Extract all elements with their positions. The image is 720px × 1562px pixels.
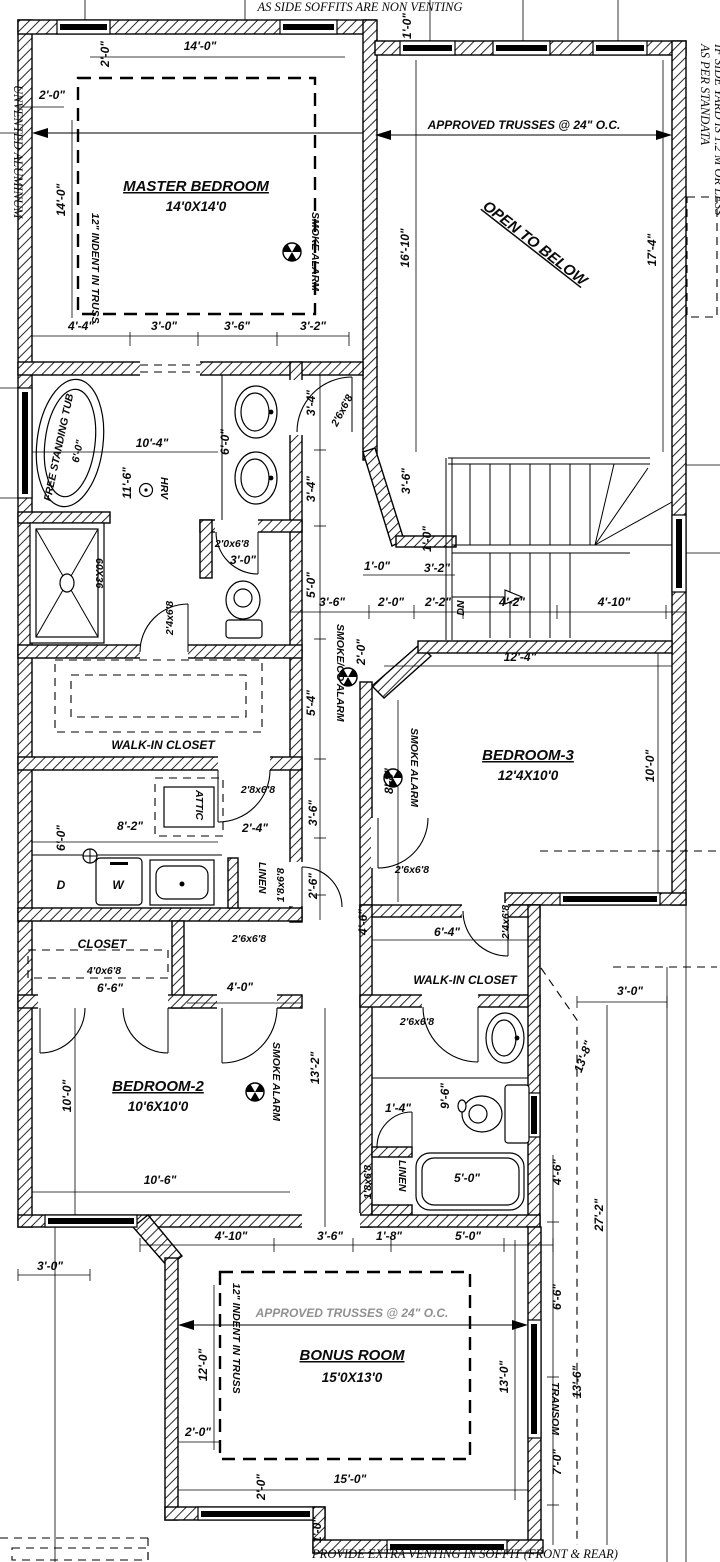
dim-label: 13'-0": [497, 1360, 511, 1393]
door-swing: [40, 1008, 85, 1053]
dim-label: 2'-0": [98, 41, 112, 68]
dim-label: 1'-8": [376, 1229, 402, 1243]
dim-label: 6'-0": [54, 825, 68, 851]
dn-label: DN: [455, 600, 467, 616]
door-label: 2'0x6'8: [214, 538, 249, 550]
room-bedroom3-name: BEDROOM-3: [482, 747, 574, 764]
note-bottom: PROVIDE EXTRA VENTING IN SOFFIT (FRONT &…: [311, 1547, 618, 1561]
window: [280, 20, 337, 34]
dim-label: 2'-0": [38, 88, 65, 102]
dim-label: 11'-6": [120, 467, 134, 499]
room-bedroom2-size: 10'6X10'0: [128, 1099, 189, 1114]
door-label: 2'4x6'8: [500, 905, 512, 940]
door-label: 2'6x6'8: [399, 1016, 434, 1028]
dim-label: 27'-2": [592, 1198, 606, 1232]
dim-label: 2'-0": [377, 595, 404, 609]
dim-label: 16'-10": [398, 228, 412, 268]
attic-access: [155, 778, 223, 836]
floor-plan-drawing: AS SIDE SOFFITS ARE NON VENTING UNVENTED…: [0, 0, 720, 1562]
dim-label: 4'-6": [356, 909, 370, 936]
dim-label: 4'-2": [498, 595, 525, 609]
dim-label: 4'-0": [226, 980, 253, 994]
dim-label: 1'-0": [364, 559, 390, 573]
open-to-below-label: OPEN TO BELOW: [479, 198, 591, 291]
room-bonus-name: BONUS ROOM: [300, 1347, 406, 1364]
dim-label: 5'-0": [454, 1171, 480, 1185]
dim-label: 3'-0": [151, 319, 177, 333]
walls: [18, 20, 686, 1553]
dim-label: 5'-4": [304, 690, 318, 716]
dim-label: 4'-4": [67, 319, 94, 333]
door-swing: [222, 1008, 277, 1063]
note-top: AS SIDE SOFFITS ARE NON VENTING: [257, 0, 463, 14]
door-label: 1'8x6'8: [275, 868, 287, 902]
faucet-icon: [83, 849, 97, 863]
dim-label: 3'-0": [37, 1259, 63, 1273]
room-master-size: 14'0X14'0: [166, 199, 227, 214]
dim-label: 8'-8": [382, 768, 396, 794]
room-bedroom2-name: BEDROOM-2: [112, 1078, 204, 1095]
room-closet: CLOSET: [78, 937, 128, 951]
dim-label: 3'-4": [304, 390, 318, 416]
dim-label: 1'-0": [310, 1517, 324, 1543]
smoke-co-alarm-label: SMOKE/CO ALARM: [334, 624, 346, 722]
window: [672, 515, 686, 592]
door-label: 1'8x6'8: [362, 1165, 374, 1199]
dim-label: 6'-6": [550, 1284, 564, 1310]
dim-label: 4'-6": [550, 1159, 564, 1186]
room-wic-bed3: WALK-IN CLOSET: [413, 973, 518, 987]
window: [18, 388, 32, 498]
truss-line: [32, 128, 363, 138]
dim-label: 2'-0": [354, 639, 368, 666]
dim-label: 1'-0": [400, 13, 414, 39]
dryer-label: D: [57, 878, 66, 892]
dim-label: 8'-2": [117, 819, 143, 833]
dim-label: 10'-0": [60, 1079, 74, 1112]
window: [593, 41, 647, 55]
door-label: 2'6x6'8: [394, 864, 429, 876]
note-right-1: AS PER STANDATA: [698, 43, 712, 146]
window: [45, 1215, 137, 1227]
dim-label: 3'-6": [319, 595, 345, 609]
dim-label: 3'-6": [317, 1229, 343, 1243]
door-swing: [218, 770, 270, 822]
dim-label: 13'-2": [308, 1051, 322, 1084]
dim-label: 13'-8": [571, 1039, 595, 1075]
dim-label: 7'-0": [550, 1449, 564, 1475]
dim-label: 14'-0": [54, 183, 68, 216]
toilet: [458, 1085, 529, 1143]
sink: [235, 386, 277, 438]
dim-label: 14'-0": [184, 39, 217, 53]
note-right-2: IF SIDE YARD IS 1.2 M OR LESS: [712, 43, 720, 216]
hrv-label: HRV: [158, 477, 170, 500]
door-swing: [123, 1008, 168, 1053]
dim-label: 10'-6": [144, 1173, 177, 1187]
dashed-lines: [0, 78, 717, 1562]
window: [57, 20, 110, 34]
trusses-note: APPROVED TRUSSES @ 24" O.C.: [427, 118, 621, 132]
dim-label: 3'-0": [230, 553, 256, 567]
dim-label: 2'-4": [241, 821, 268, 835]
dim-label: 3'-6": [306, 800, 320, 826]
dim-label: 5'-0": [304, 572, 318, 598]
window: [528, 1320, 541, 1438]
washer-label: W: [112, 878, 125, 892]
dim-label: 2'-2": [424, 595, 451, 609]
room-master-name: MASTER BEDROOM: [123, 178, 269, 195]
toilet: [226, 581, 262, 638]
door-label: 4'0x6'8: [86, 965, 121, 977]
room-wic-master: WALK-IN CLOSET: [111, 738, 216, 752]
sink: [235, 452, 277, 504]
shower-size-label: 60X36: [93, 558, 105, 589]
door-swing: [378, 818, 428, 868]
smoke-alarm-icon: [246, 1083, 264, 1101]
dim-label: 2'-0": [254, 1474, 268, 1501]
door-label: 2'8x6'8: [240, 784, 275, 796]
dim-label: 1'-4": [385, 1101, 411, 1115]
door-swing: [377, 1112, 412, 1147]
window: [493, 41, 550, 55]
dim-label: 12'-4": [504, 650, 537, 664]
room-linen-lower: LINEN: [396, 1160, 408, 1192]
smoke-alarm-label: SMOKE ALARM: [270, 1042, 282, 1121]
dim-label: 10'-0": [643, 749, 657, 782]
dim-label: 6'-0": [218, 429, 232, 455]
transom-label: TRANSOM: [549, 1382, 561, 1435]
smoke-alarm-label: SMOKE ALARM: [408, 728, 420, 807]
room-bedroom3-size: 12'4X10'0: [498, 768, 559, 783]
smoke-alarm-icon: [283, 243, 301, 261]
windows: [18, 20, 686, 1553]
dim-label: 3'-6": [224, 319, 250, 333]
dim-label: 4'-10": [214, 1229, 248, 1243]
hrv-vent-icon: [140, 484, 153, 497]
window: [198, 1507, 313, 1520]
dim-label: 1'-0": [420, 526, 434, 552]
dim-label: 3'-6": [399, 468, 413, 494]
dim-label: 9'-6": [438, 1083, 452, 1109]
indent-note-bonus: 12" INDENT IN TRUSS: [230, 1283, 242, 1394]
dim-label: 2'-6": [306, 873, 320, 900]
dim-label: 3'-4": [304, 476, 318, 502]
window: [560, 893, 660, 905]
dim-label: 17'-4": [645, 233, 659, 266]
dim-label: 13'-6": [570, 1365, 584, 1398]
laundry-sink: [150, 860, 214, 905]
floor-plan-page: AS SIDE SOFFITS ARE NON VENTING UNVENTED…: [0, 0, 720, 1562]
dim-label: 6'-4": [434, 925, 460, 939]
smoke-alarm-label: SMOKE ALARM: [309, 212, 321, 291]
room-attic: ATTIC: [193, 789, 205, 821]
dim-label: 12'-0": [196, 1348, 210, 1381]
dim-label: 15'-0": [334, 1472, 367, 1486]
dim-label: 2'-0": [184, 1425, 211, 1439]
dim-label: 3'-2": [300, 319, 326, 333]
dim-label: 10'-4": [136, 436, 169, 450]
dim-label: 5'-0": [455, 1229, 481, 1243]
note-left: UNVENTED ALUMINUM: [11, 85, 25, 219]
trusses-note-bonus: APPROVED TRUSSES @ 24" O.C.: [255, 1306, 449, 1320]
dim-label: 3'-2": [424, 561, 450, 575]
window: [528, 1093, 540, 1137]
shower: [30, 523, 104, 643]
door-label: 2'4x6'8: [164, 601, 176, 636]
window: [400, 41, 455, 55]
sink: [486, 1013, 524, 1063]
room-bonus-size: 15'0X13'0: [322, 1370, 383, 1385]
indent-note-master: 12" INDENT IN TRUSS: [89, 213, 101, 324]
dim-label: 6'-6": [97, 981, 123, 995]
dim-label: 3'-0": [617, 984, 643, 998]
room-linen-upper: LINEN: [256, 862, 268, 894]
door-label: 2'6x6'8: [231, 933, 266, 945]
stairs: [446, 458, 672, 640]
dim-label: 4'-10": [597, 595, 631, 609]
